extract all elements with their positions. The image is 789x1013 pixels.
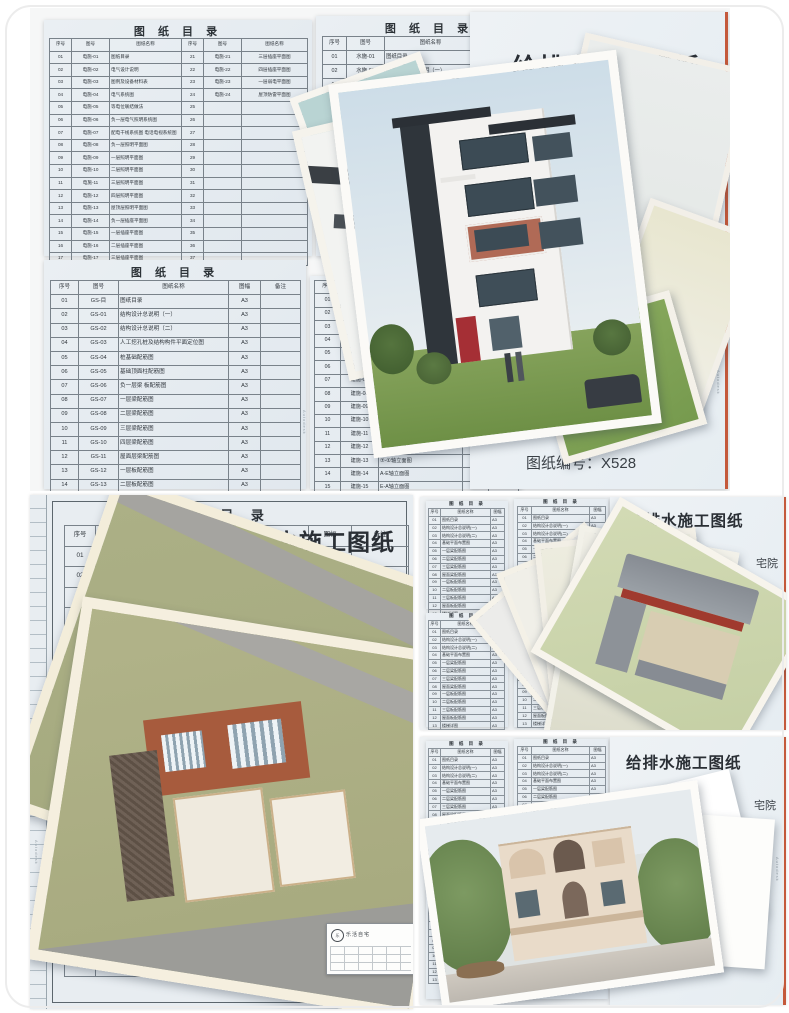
main-villa-photo [328,50,662,459]
table-cell: 04 [50,89,72,102]
column-header: 图纸名称 [385,37,477,51]
table-cell [261,408,301,422]
table-cell: 35 [182,227,204,240]
table-cell [261,366,301,380]
partial-project-name: 宅院 [754,797,776,813]
table-header-row: 序号图纸名称图幅 [429,749,505,757]
table-cell: A3 [491,516,505,524]
table-cell: 12 [429,714,441,722]
table-cell: 图纸目录 [110,51,182,64]
table-cell: 一层梁配筋图 [441,787,491,795]
table-cell: 24 [182,89,204,102]
table-cell: 二层板配筋图 [119,479,229,491]
table-cell: 结构设计总说明(一) [441,524,491,532]
table-cell: 08 [429,683,441,691]
table-row: 12屋面板配筋图A3 [429,714,505,722]
column-header: 图纸名称 [441,509,491,517]
table-cell [261,309,301,323]
table-row: 10二层板配筋图A3 [429,586,505,594]
table-cell: 09 [50,152,72,165]
table-cell: 34 [182,215,204,228]
table-cell: 23 [182,76,204,89]
table-cell: 一层板配筋图 [119,465,229,479]
table-row: 13楼梯详图A3 [429,722,505,730]
table-cell: 电施-16 [72,240,110,253]
villa-building [498,826,647,961]
table-cell: 04 [51,337,79,351]
table-cell: GS-11 [79,451,119,465]
table-row: 01图纸目录A3 [429,516,505,524]
table-row: 03电施-03图例及设备材料表23电施-23一层弱电平面图 [50,76,308,89]
table-cell: A3 [590,514,606,522]
table-cell: 电施-15 [72,227,110,240]
table-cell [204,164,242,177]
table-cell: 桩基础配筋图 [119,351,229,365]
table-cell: A-E轴立面图 [379,468,463,481]
table-cell: A3 [229,408,261,422]
table-cell: 21 [182,51,204,64]
table-cell: A3 [491,532,505,540]
table-cell: 11 [429,706,441,714]
table-row: 07GS-06负一层梁 板配筋图A3 [51,380,301,394]
table-cell: A3 [229,479,261,491]
table-cell: 电施-09 [72,152,110,165]
table-cell [261,323,301,337]
mini-catalog-sheet: 图 纸 目 录 序号图纸名称图幅 01图纸目录A302结构设计总说明(一)A30… [426,501,508,609]
table-cell [261,337,301,351]
table-cell: 13 [51,465,79,479]
table-row: 01电施-01图纸目录21电施-21三层插座平面图 [50,51,308,64]
column-header: 图幅 [491,749,505,757]
table-row: 12GS-11屋面层梁配筋图A3 [51,451,301,465]
catalog-title: 图 纸 目 录 [44,20,312,39]
table-cell: 一层板配筋图 [441,691,491,699]
table-cell: 图纸目录 [441,516,491,524]
table-row: 08屋面梁配筋图A3 [429,683,505,691]
table-cell: A3 [590,785,606,793]
table-cell: 10 [51,422,79,436]
table-cell: 三层梁配筋图 [441,675,491,683]
table-row: 16电施-16二层插座平面图36 [50,240,308,253]
table-row: 01图纸目录A3 [518,754,606,762]
table-cell: 二层板配筋图 [441,586,491,594]
table-cell: 01 [429,628,441,636]
column-header: 序号 [51,281,79,295]
table-row: 14电施-14负一层插座平面图34 [50,215,308,228]
table-cell [242,202,308,215]
villa-render [338,60,652,448]
table-cell: 结构设计总说明（二） [119,323,229,337]
arch-window [552,838,585,872]
table-cell: 电施-14 [72,215,110,228]
table-cell: 配电干线系统图 电话电视系统图 [110,127,182,140]
column-header: 序号 [518,507,532,515]
column-header: 序号 [429,749,441,757]
table-cell: 06 [518,793,532,801]
table-cell: 10 [429,586,441,594]
table-cell: A3 [491,555,505,563]
table-cell: 电施-21 [204,51,242,64]
courtyard-block [269,789,355,887]
table-cell: 14 [50,215,72,228]
table-cell: 01 [429,756,441,764]
table-cell: 二层梁配筋图 [119,408,229,422]
table-header-row: 序号图纸名称图幅 [518,507,606,515]
table-cell: 31 [182,177,204,190]
table-row: 01图纸目录A3 [429,756,505,764]
villa-photo [420,780,724,1005]
table-cell: 10 [518,696,532,704]
table-cell: 05 [315,347,341,360]
table-cell: 27 [182,127,204,140]
table-cell: 结构设计总说明(一) [532,762,590,770]
table-cell: 电施-07 [72,127,110,140]
table-cell: 11 [518,704,532,712]
table-cell [204,202,242,215]
table-row: 02结构设计总说明(一)A3 [429,524,505,532]
table-cell: 13 [518,720,532,728]
table-row: 06二层梁配筋图A3 [429,795,505,803]
table-cell: 32 [182,190,204,203]
table-cell: 02 [429,524,441,532]
table-cell: A3 [229,451,261,465]
window [533,175,578,207]
table-row: 05电施-05等电位联结做法25 [50,101,308,114]
table-row: 03GS-02结构设计总说明（二）A3 [51,323,301,337]
table-cell: 10 [429,698,441,706]
table-cell: 电施-22 [204,64,242,77]
table-cell [261,479,301,491]
table-cell: 09 [315,401,341,414]
table-cell: A3 [229,380,261,394]
table-row: 10电施-10二层照明平面图30 [50,164,308,177]
window [532,132,573,162]
table-cell: 04 [518,778,532,786]
electrical-catalog-table: 序号图号图纸名称序号图号图纸名称 01电施-01图纸目录21电施-21三层插座平… [49,38,308,266]
table-cell: A3 [229,295,261,309]
table-cell [204,127,242,140]
table-cell: 12 [315,441,341,454]
bottom-right-top-photo-section: 图 纸 目 录 序号图纸名称图幅 01图纸目录A302结构设计总说明(一)A30… [420,497,786,730]
table-cell: 08 [429,571,441,579]
table-cell: GS-03 [79,337,119,351]
table-cell: 一层弱电平面图 [242,76,308,89]
autodesk-edge-label: Autodesk [302,410,307,435]
table-cell: 06 [315,361,341,374]
table-row: 15电施-15一层插座平面图35 [50,227,308,240]
table-cell [204,190,242,203]
courtyard-house [105,696,367,917]
table-cell: 04 [429,652,441,660]
table-cell: A3 [590,778,606,786]
table-row: 06二层梁配筋图A3 [429,667,505,675]
table-row: 08电施-08负一层照明平面图28 [50,139,308,152]
table-cell: 11 [50,177,72,190]
column-header: 序号 [50,39,72,52]
table-cell: 水施-01 [347,51,385,65]
table-cell: 30 [182,164,204,177]
table-cell [261,451,301,465]
table-cell: 05 [429,659,441,667]
table-cell: A3 [491,722,505,730]
table-cell: 结构设计总说明(二) [532,770,590,778]
table-cell: 22 [182,64,204,77]
table-row: 02结构设计总说明(一)A3 [429,764,505,772]
table-cell: 08 [315,388,341,401]
table-row: 04基础平面布置图A3 [429,652,505,660]
table-row: 03结构设计总说明(二)A3 [429,532,505,540]
table-row: 04GS-03人工挖孔桩及结构构件平面定位图A3 [51,337,301,351]
table-cell: GS-10 [79,437,119,451]
table-cell: 06 [429,555,441,563]
table-cell: A3 [491,772,505,780]
table-cell: A3 [491,691,505,699]
table-cell: 12 [51,451,79,465]
table-cell: 电施-06 [72,114,110,127]
table-cell [204,114,242,127]
table-cell: 四层梁配筋图 [119,437,229,451]
table-cell: 电施-13 [72,202,110,215]
table-row: 03结构设计总说明(二)A3 [518,770,606,778]
column-header: 序号 [323,37,347,51]
table-cell: 结构设计总说明(二) [441,772,491,780]
table-row: 01图纸目录A3 [518,514,606,522]
table-cell: 建施-14 [341,468,379,481]
table-cell: 06 [429,795,441,803]
table-cell: A3 [491,787,505,795]
table-row: 07三层梁配筋图A3 [429,675,505,683]
table-cell: 09 [429,579,441,587]
table-cell: A3 [229,394,261,408]
table-cell: 07 [429,563,441,571]
table-row: 09一层板配筋图A3 [429,691,505,699]
table-row: 10GS-09三层梁配筋图A3 [51,422,301,436]
table-cell: 02 [429,764,441,772]
skylights [161,730,206,772]
table-row: 09GS-08二层梁配筋图A3 [51,408,301,422]
table-cell: 屋面层梁配筋图 [119,451,229,465]
table-cell: 一层照明平面图 [110,152,182,165]
terracotta-roof [143,701,310,797]
table-row: 04电施-04电气系统图24电施-24屋顶防雷平面图 [50,89,308,102]
table-cell: 14 [315,468,341,481]
table-cell: A3 [229,351,261,365]
table-header-row: 序号图号图纸名称图幅备注 [51,281,301,295]
table-cell: 基础平面布置图 [441,780,491,788]
courtyard-block [172,787,274,902]
table-cell: 05 [518,785,532,793]
catalog-title: 图 纸 目 录 [514,499,608,505]
table-cell [204,227,242,240]
bottom-left-photo-section: Autodesk 图 纸 目 录 序号图号图纸名称图幅备注 01SS-01图纸目… [30,495,413,1009]
autodesk-edge-label: Autodesk [34,840,39,865]
table-cell: 06 [50,114,72,127]
table-cell: 结构设计总说明(二) [441,532,491,540]
stamp-text: 乐活自宅 [346,931,370,938]
table-cell: GS-09 [79,422,119,436]
table-cell: 01 [323,51,347,65]
column-header: 图号 [204,39,242,52]
autodesk-edge-label: Autodesk [716,370,721,395]
courtyard-building [595,553,759,702]
table-cell: A3 [491,675,505,683]
catalog-title: 图 纸 目 录 [426,501,508,507]
villa-building [380,97,600,369]
table-row: 04基础平面布置图A3 [429,540,505,548]
table-cell: 基础平面布置图 [532,778,590,786]
column-header: 序号 [429,621,441,629]
table-cell: 四层插座平面图 [242,64,308,77]
table-row: 09一层板配筋图A3 [429,579,505,587]
stamp-grid [330,946,411,971]
table-cell: 02 [518,522,532,530]
table-cell: 03 [429,772,441,780]
product-photo-collage: 图 纸 目 录 序号图号图纸名称序号图号图纸名称 01电施-01图纸目录21电施… [0,0,789,1013]
table-cell: 06 [429,667,441,675]
table-cell: 基础平面布置图 [441,540,491,548]
table-cell: 09 [429,691,441,699]
table-cell: A3 [590,770,606,778]
table-cell: 建施-15 [341,481,379,491]
catalog-title: 图 纸 目 录 [44,260,306,280]
red-binding-edge [783,737,786,1005]
structural-catalog-table: 序号图号图纸名称图幅备注 01GS-目图纸目录A302GS-01结构设计总说明（… [50,280,301,491]
table-header-row: 序号图号图纸名称序号图号图纸名称 [50,39,308,52]
table-cell: 03 [429,644,441,652]
table-row: 03结构设计总说明(二)A3 [429,772,505,780]
table-cell: 02 [429,636,441,644]
column-header: 图幅 [491,509,505,517]
table-cell: A3 [229,309,261,323]
table-cell: 基础平面布置图 [441,652,491,660]
autodesk-edge-label: Autodesk [775,857,780,882]
table-cell: 01 [518,514,532,522]
table-cell: 05 [429,787,441,795]
table-cell: E-A轴立面图 [379,481,463,491]
table-cell: 01 [518,754,532,762]
table-cell: 电施-23 [204,76,242,89]
table-cell [261,380,301,394]
title-block-stamp: 乐 乐活自宅 [326,923,413,975]
table-cell: A3 [491,540,505,548]
table-cell: A3 [491,795,505,803]
table-cell: 电施-12 [72,190,110,203]
table-cell: 二层梁配筋图 [441,555,491,563]
logo-icon: 乐 [331,929,344,942]
table-cell [261,295,301,309]
table-row: 08屋面梁配筋图A3 [429,571,505,579]
table-row: 11电施-11三层照明平面图31 [50,177,308,190]
table-cell: GS-07 [79,394,119,408]
table-cell: 结构设计总说明(二) [441,644,491,652]
table-cell: A3 [491,683,505,691]
table-cell: 电施-08 [72,139,110,152]
table-cell: 05 [518,545,532,553]
column-header: 图幅 [590,747,606,755]
table-cell: 电施-24 [204,89,242,102]
table-cell [261,465,301,479]
table-cell [204,240,242,253]
table-cell [204,152,242,165]
table-cell: 02 [518,762,532,770]
table-cell: 三层插座平面图 [242,51,308,64]
table-cell: GS-02 [79,323,119,337]
table-cell: 08 [51,394,79,408]
table-cell [242,177,308,190]
table-cell: 25 [182,101,204,114]
table-cell: 负一层照明平面图 [110,139,182,152]
table-cell: A3 [491,667,505,675]
table-cell [261,394,301,408]
table-cell: 12 [518,712,532,720]
column-header: 图纸名称 [110,39,182,52]
table-row: 07三层梁配筋图A3 [429,563,505,571]
table-cell: 二层插座平面图 [110,240,182,253]
table-cell [261,422,301,436]
table-cell: GS-05 [79,366,119,380]
table-cell: 屋面梁配筋图 [441,683,491,691]
column-header: 序号 [65,526,96,547]
table-cell: 15 [315,481,341,491]
table-cell [242,190,308,203]
table-cell: A3 [590,754,606,762]
top-photo-section: 图 纸 目 录 序号图号图纸名称序号图号图纸名称 01电施-01图纸目录21电施… [30,8,730,491]
table-row: 05一层梁配筋图A3 [429,659,505,667]
table-cell: 图纸目录 [441,756,491,764]
table-cell: 三层梁配筋图 [119,422,229,436]
table-cell [204,177,242,190]
table-cell: 07 [429,803,441,811]
column-header: 图号 [72,39,110,52]
table-cell: 电施-04 [72,89,110,102]
table-cell: 楼梯详图 [441,722,491,730]
table-cell: 负一层梁 板配筋图 [119,380,229,394]
column-header: 图纸名称 [441,749,491,757]
table-row: 07电施-07配电干线系统图 电话电视系统图27 [50,127,308,140]
table-cell: 04 [518,538,532,546]
column-header: 备注 [261,281,301,295]
table-cell [204,101,242,114]
table-cell [204,139,242,152]
table-header-row: 序号图纸名称图幅 [518,747,606,755]
catalog-title: 图 纸 目 录 [514,739,608,745]
table-cell: 03 [518,770,532,778]
table-cell: GS-目 [79,295,119,309]
table-cell: 人工挖孔桩及结构构件平面定位图 [119,337,229,351]
upper-wall [592,837,625,867]
table-cell: GS-04 [79,351,119,365]
table-cell: 15 [50,227,72,240]
table-cell: A3 [491,524,505,532]
table-row: 11三层板配筋图A3 [429,706,505,714]
table-cell: 电施-05 [72,101,110,114]
sheet-electrical-catalog: 图 纸 目 录 序号图号图纸名称序号图号图纸名称 01电施-01图纸目录21电施… [44,20,312,256]
table-cell [204,215,242,228]
table-cell: GS-08 [79,408,119,422]
table-cell: 电施-03 [72,76,110,89]
table-cell: 二层照明平面图 [110,164,182,177]
table-cell [261,351,301,365]
table-cell: A3 [229,323,261,337]
table-cell: 07 [51,380,79,394]
table-cell: 基础顶面柱配筋图 [119,366,229,380]
table-cell: 二层梁配筋图 [441,795,491,803]
table-cell: 28 [182,139,204,152]
table-cell: 图纸目录 [532,514,590,522]
table-cell: 03 [50,76,72,89]
table-cell: 01 [429,516,441,524]
table-cell: 07 [429,675,441,683]
